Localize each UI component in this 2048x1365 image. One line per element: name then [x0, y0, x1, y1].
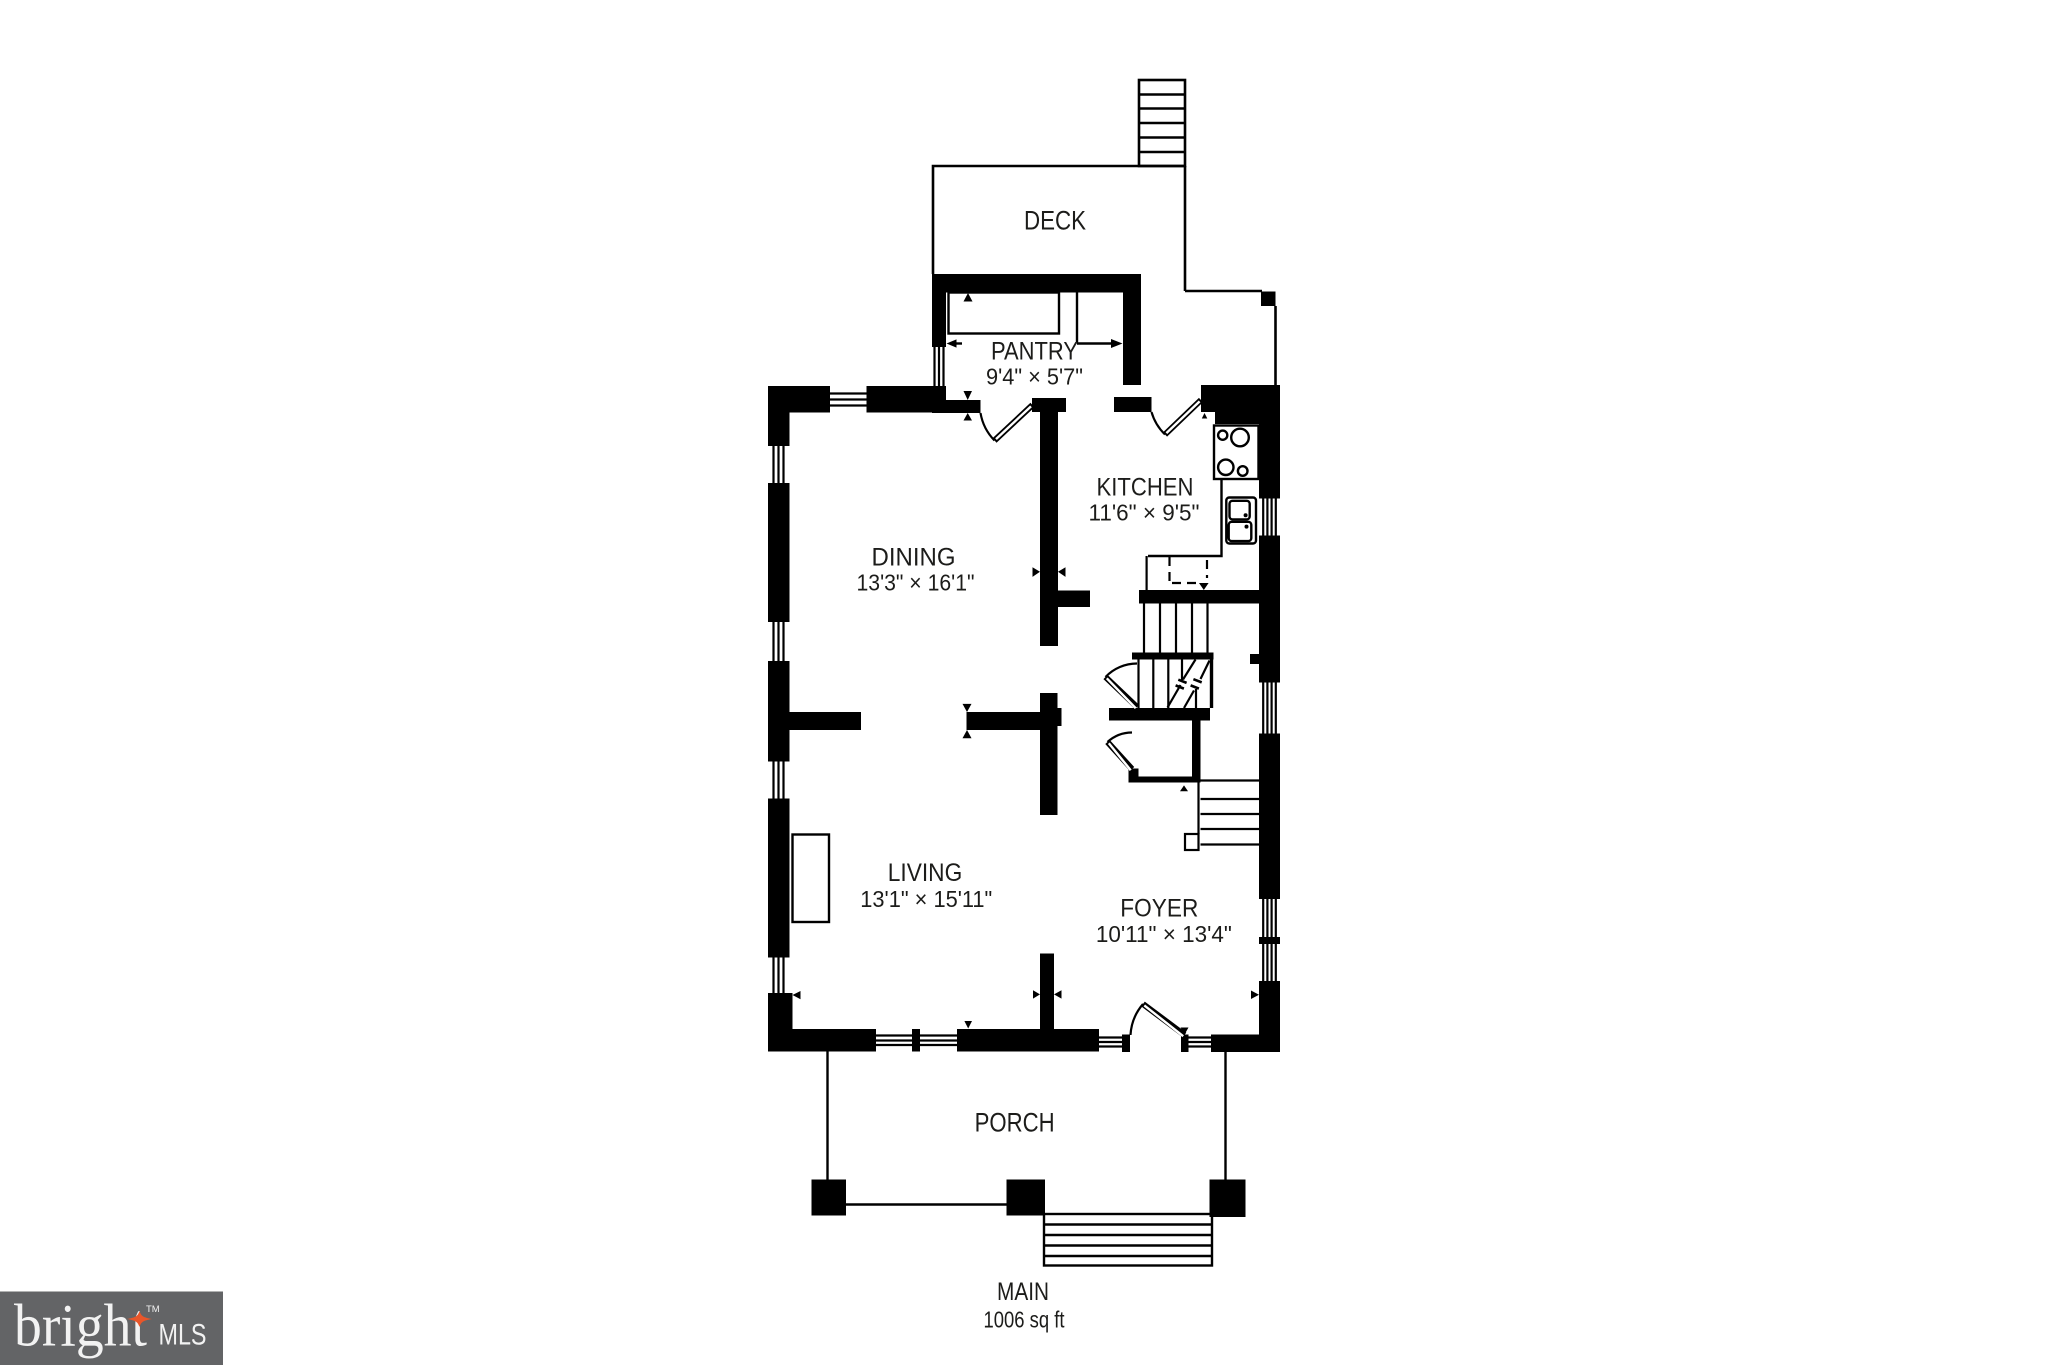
svg-text:PANTRY: PANTRY [991, 338, 1078, 366]
svg-text:TM: TM [146, 1304, 160, 1315]
svg-text:KITCHEN: KITCHEN [1097, 474, 1194, 502]
svg-text:bright: bright [14, 1293, 147, 1359]
svg-text:11'6" × 9'5": 11'6" × 9'5" [1089, 500, 1200, 526]
svg-text:MAIN: MAIN [997, 1278, 1049, 1306]
svg-text:1006 sq ft: 1006 sq ft [984, 1307, 1065, 1333]
svg-text:13'1" × 15'11": 13'1" × 15'11" [860, 886, 992, 912]
svg-text:9'4" × 5'7": 9'4" × 5'7" [986, 364, 1083, 390]
svg-text:DECK: DECK [1024, 206, 1086, 236]
svg-text:10'11" × 13'4": 10'11" × 13'4" [1096, 921, 1232, 947]
svg-text:FOYER: FOYER [1120, 895, 1198, 923]
svg-text:LIVING: LIVING [888, 859, 963, 887]
svg-text:DINING: DINING [872, 543, 956, 571]
svg-text:13'3" × 16'1": 13'3" × 16'1" [857, 570, 975, 596]
svg-text:MLS: MLS [159, 1319, 207, 1352]
svg-text:PORCH: PORCH [975, 1108, 1055, 1138]
